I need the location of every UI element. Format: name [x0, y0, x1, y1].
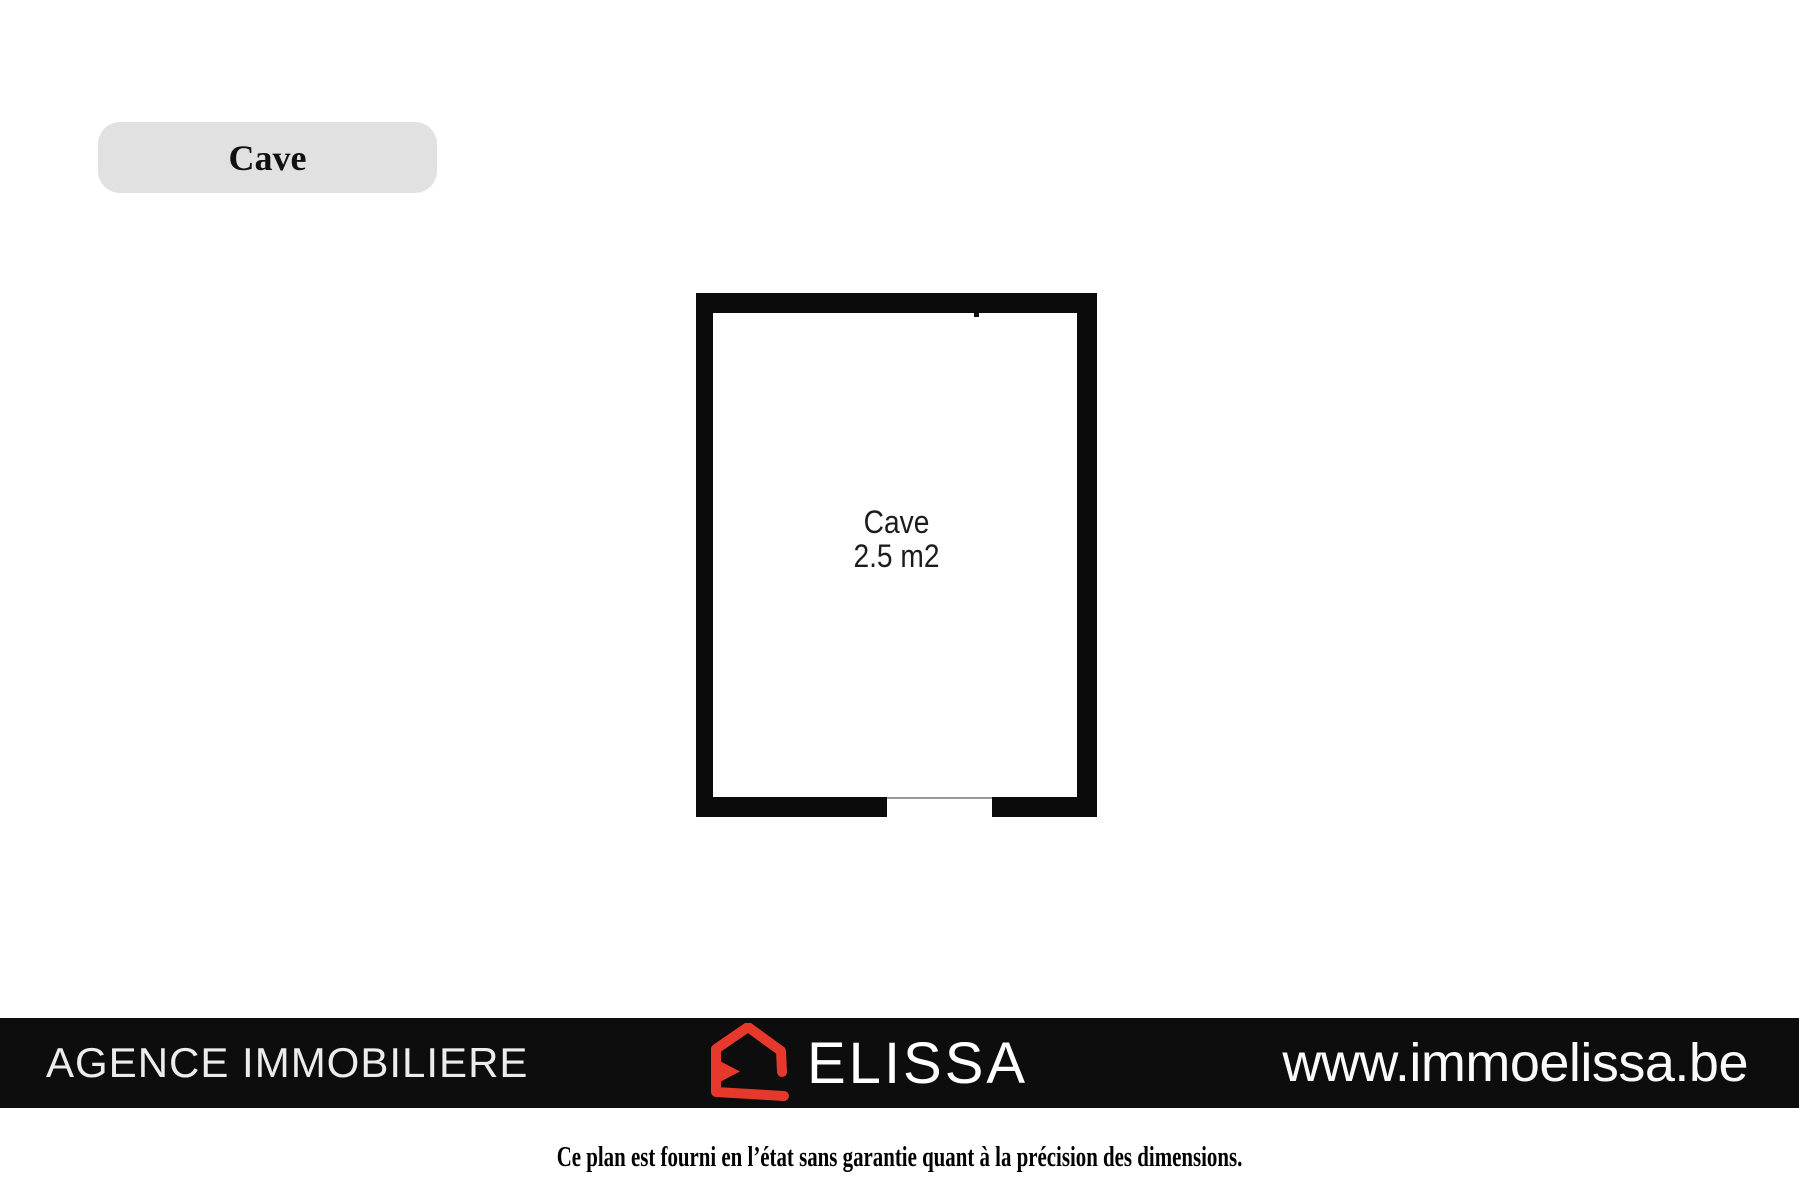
door-opening-threshold	[887, 797, 992, 799]
floor-tab-label: Cave	[229, 137, 307, 179]
wall-bottom-left	[696, 797, 887, 817]
brand-name: ELISSA	[807, 1030, 1028, 1097]
house-icon	[710, 1023, 790, 1103]
footer-banner: AGENCE IMMOBILIERE ELISSA www.immoelissa…	[0, 1018, 1799, 1108]
floorplan: Cave 2.5 m2	[696, 293, 1097, 817]
wall-left	[696, 293, 713, 817]
wall-top	[696, 293, 1097, 313]
disclaimer-text: Ce plan est fourni en l’état sans garant…	[252, 1141, 1547, 1174]
brand-logo: ELISSA	[710, 1018, 1028, 1108]
floor-tab-cave[interactable]: Cave	[98, 122, 437, 193]
agency-name: AGENCE IMMOBILIERE	[46, 1039, 528, 1087]
room-label: Cave 2.5 m2	[720, 505, 1073, 573]
room-name-label: Cave	[720, 505, 1073, 539]
room-area-label: 2.5 m2	[720, 539, 1073, 573]
floorplan-page: Cave Cave 2.5 m2 AGENCE IMMOBILIERE ELIS…	[0, 0, 1799, 1200]
website-url: www.immoelissa.be	[1282, 1032, 1748, 1094]
wall-right	[1077, 293, 1097, 817]
wall-bottom-right	[992, 797, 1097, 817]
corner-tick	[974, 313, 979, 317]
